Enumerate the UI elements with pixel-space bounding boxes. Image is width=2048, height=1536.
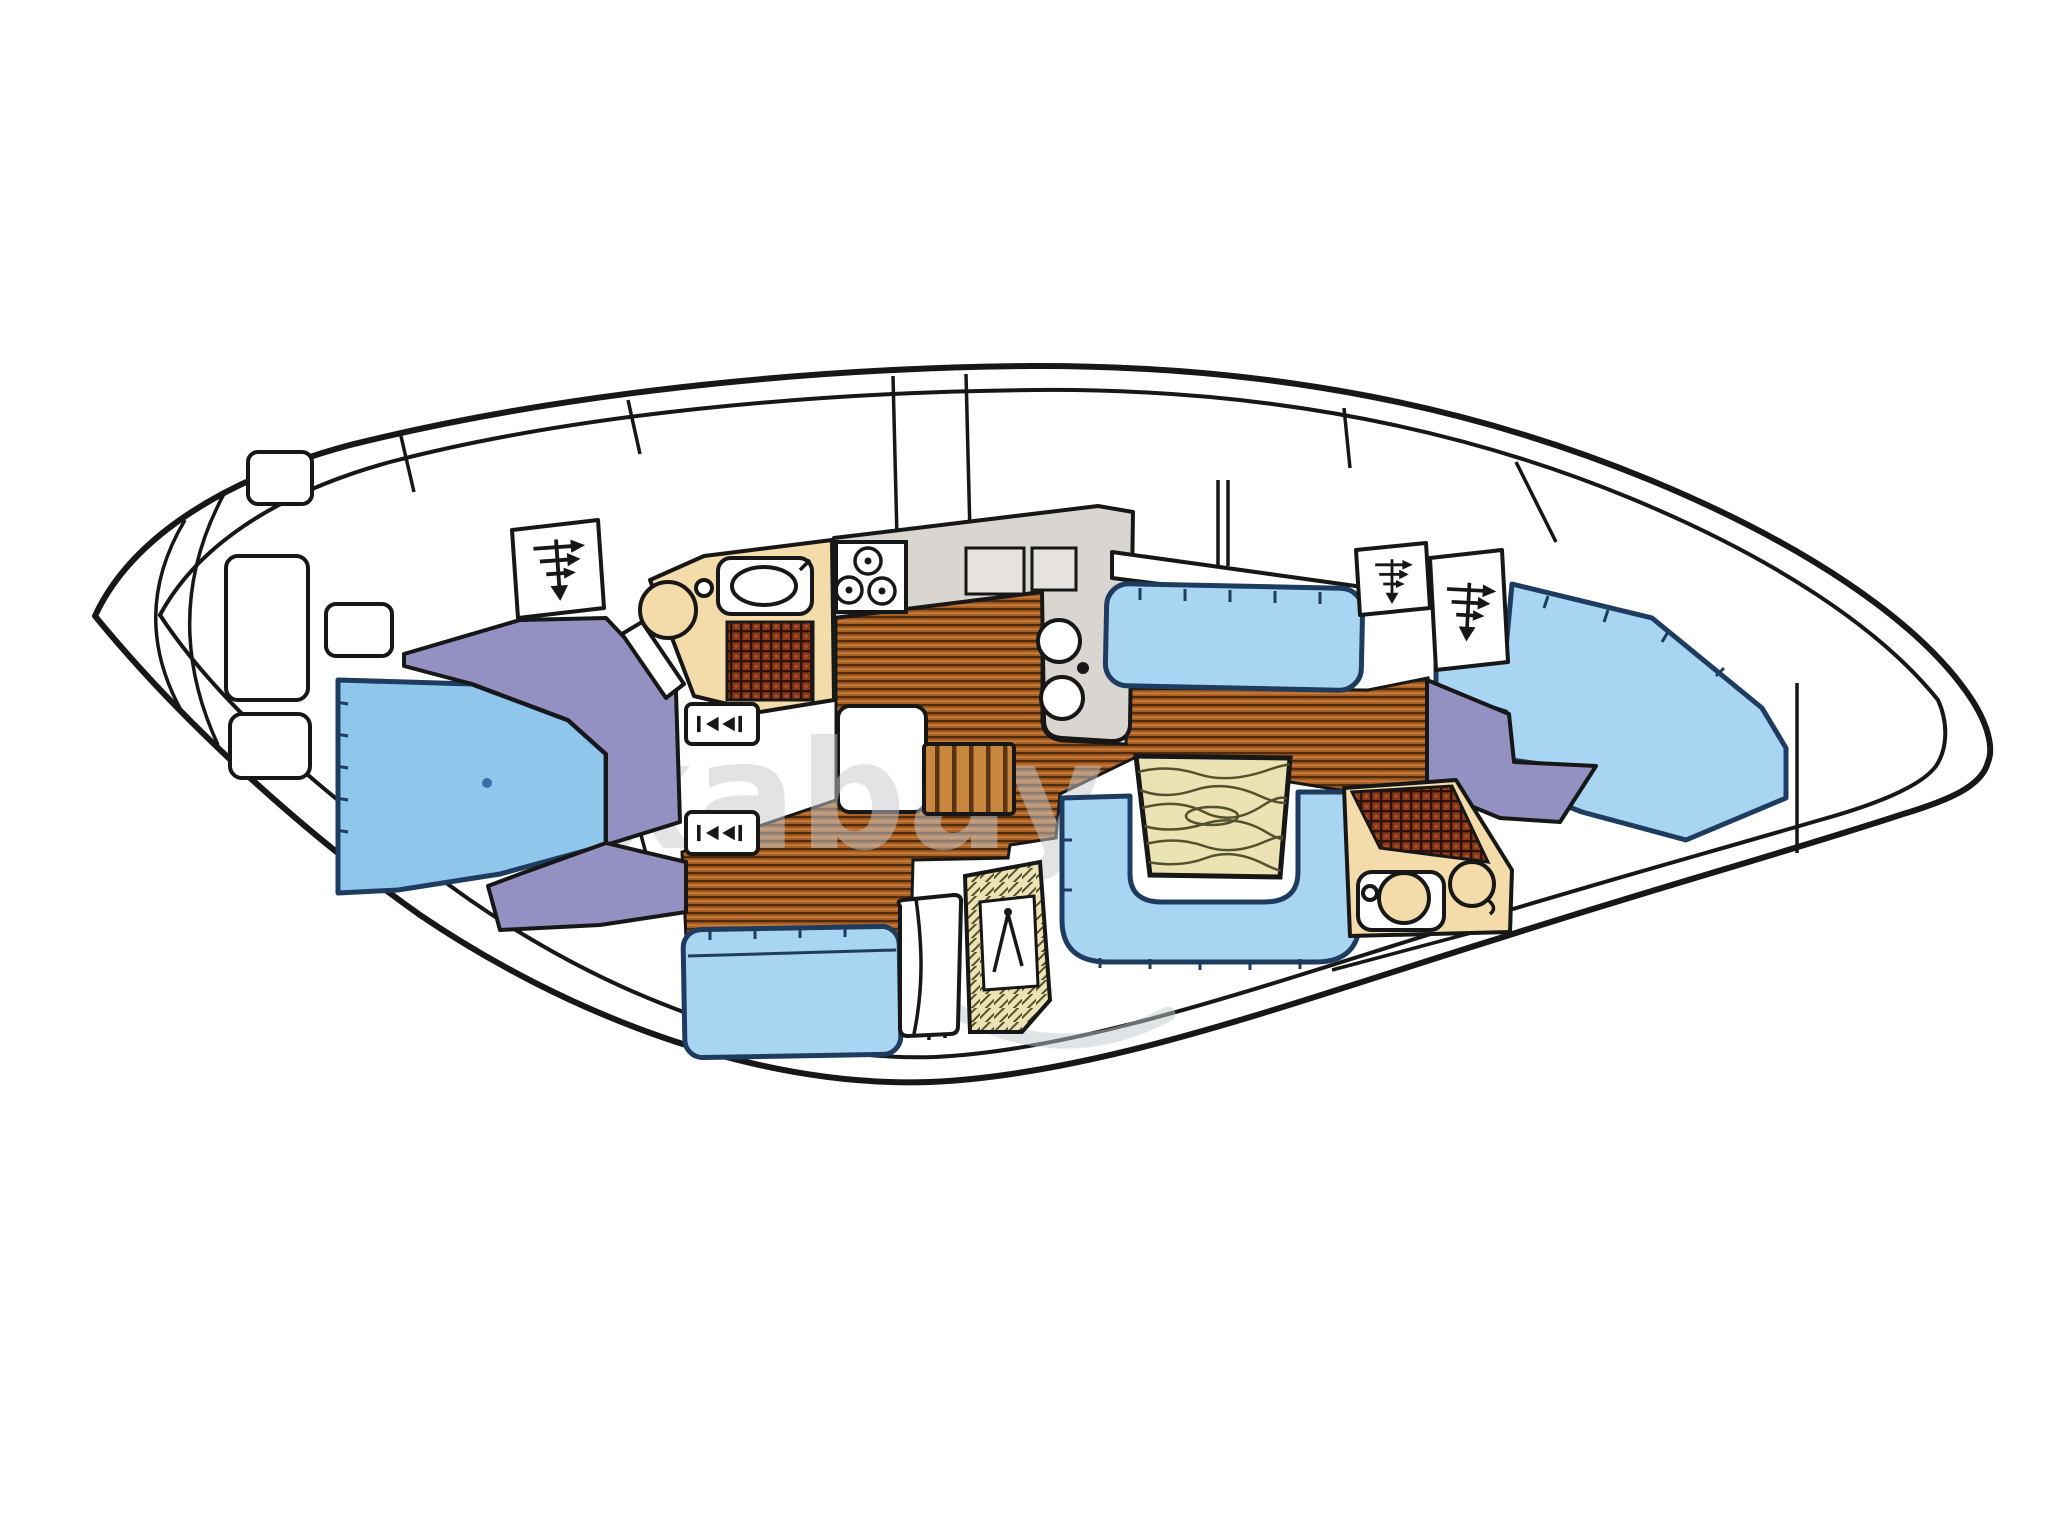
forward-head-faucet bbox=[696, 580, 712, 596]
nav-seat bbox=[899, 895, 962, 1036]
hanging-locker-door-lower bbox=[686, 812, 758, 854]
stove-burner-dot bbox=[879, 588, 886, 595]
forward-head-sink bbox=[640, 582, 696, 638]
v-berth-button bbox=[482, 778, 492, 788]
aft-head-toilet-bowl bbox=[1379, 873, 1429, 923]
companionway-steps bbox=[924, 744, 1014, 814]
galley-counter-locker bbox=[1032, 548, 1076, 590]
bow-locker-panel-lower bbox=[230, 714, 310, 778]
bow-locker-panel-upper bbox=[226, 556, 308, 700]
galley-sink bbox=[1041, 677, 1083, 719]
aft-deck-hatch bbox=[1430, 550, 1508, 670]
stove-burner-dot bbox=[846, 587, 853, 594]
hanging-locker-door-upper bbox=[686, 704, 758, 744]
forward-deck-hatch bbox=[512, 520, 604, 618]
stove-burner-dot bbox=[865, 558, 872, 565]
galley-faucet bbox=[1077, 662, 1089, 674]
forward-head-toilet-bowl bbox=[732, 567, 796, 605]
salon-settee-top bbox=[1105, 583, 1363, 690]
galley-sink bbox=[1038, 620, 1080, 662]
boat-floor-plan-image: pixabay bbox=[0, 0, 2048, 1536]
aft-head-sink bbox=[1450, 862, 1494, 906]
bow-locker-shelf bbox=[248, 452, 312, 504]
mid-deck-hatch bbox=[1356, 543, 1430, 615]
forward-head-shower-grate bbox=[727, 622, 813, 700]
galley-counter-locker bbox=[966, 548, 1024, 594]
aft-head-faucet bbox=[1363, 886, 1377, 900]
salon-settee-bottom bbox=[683, 926, 901, 1058]
forward-cabin-locker bbox=[326, 604, 392, 656]
floor-plan-svg: pixabay bbox=[0, 0, 2048, 1536]
